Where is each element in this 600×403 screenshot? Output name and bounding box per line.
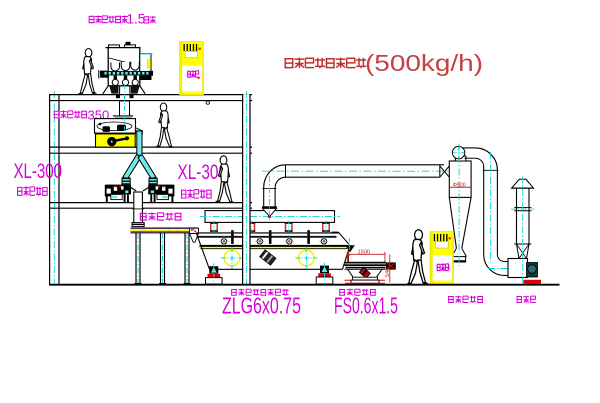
svg-text:FS0.6x1.5: FS0.6x1.5	[334, 293, 398, 319]
svg-text:XL-300: XL-300	[14, 159, 63, 183]
svg-text:(500kg/h): (500kg/h)	[365, 50, 483, 76]
svg-text:1500: 1500	[358, 249, 370, 255]
svg-text:1.5: 1.5	[127, 12, 146, 27]
svg-text:Φ900: Φ900	[453, 182, 466, 188]
svg-text:540: 540	[385, 268, 391, 277]
svg-text:ZLG6x0.75: ZLG6x0.75	[222, 293, 301, 319]
